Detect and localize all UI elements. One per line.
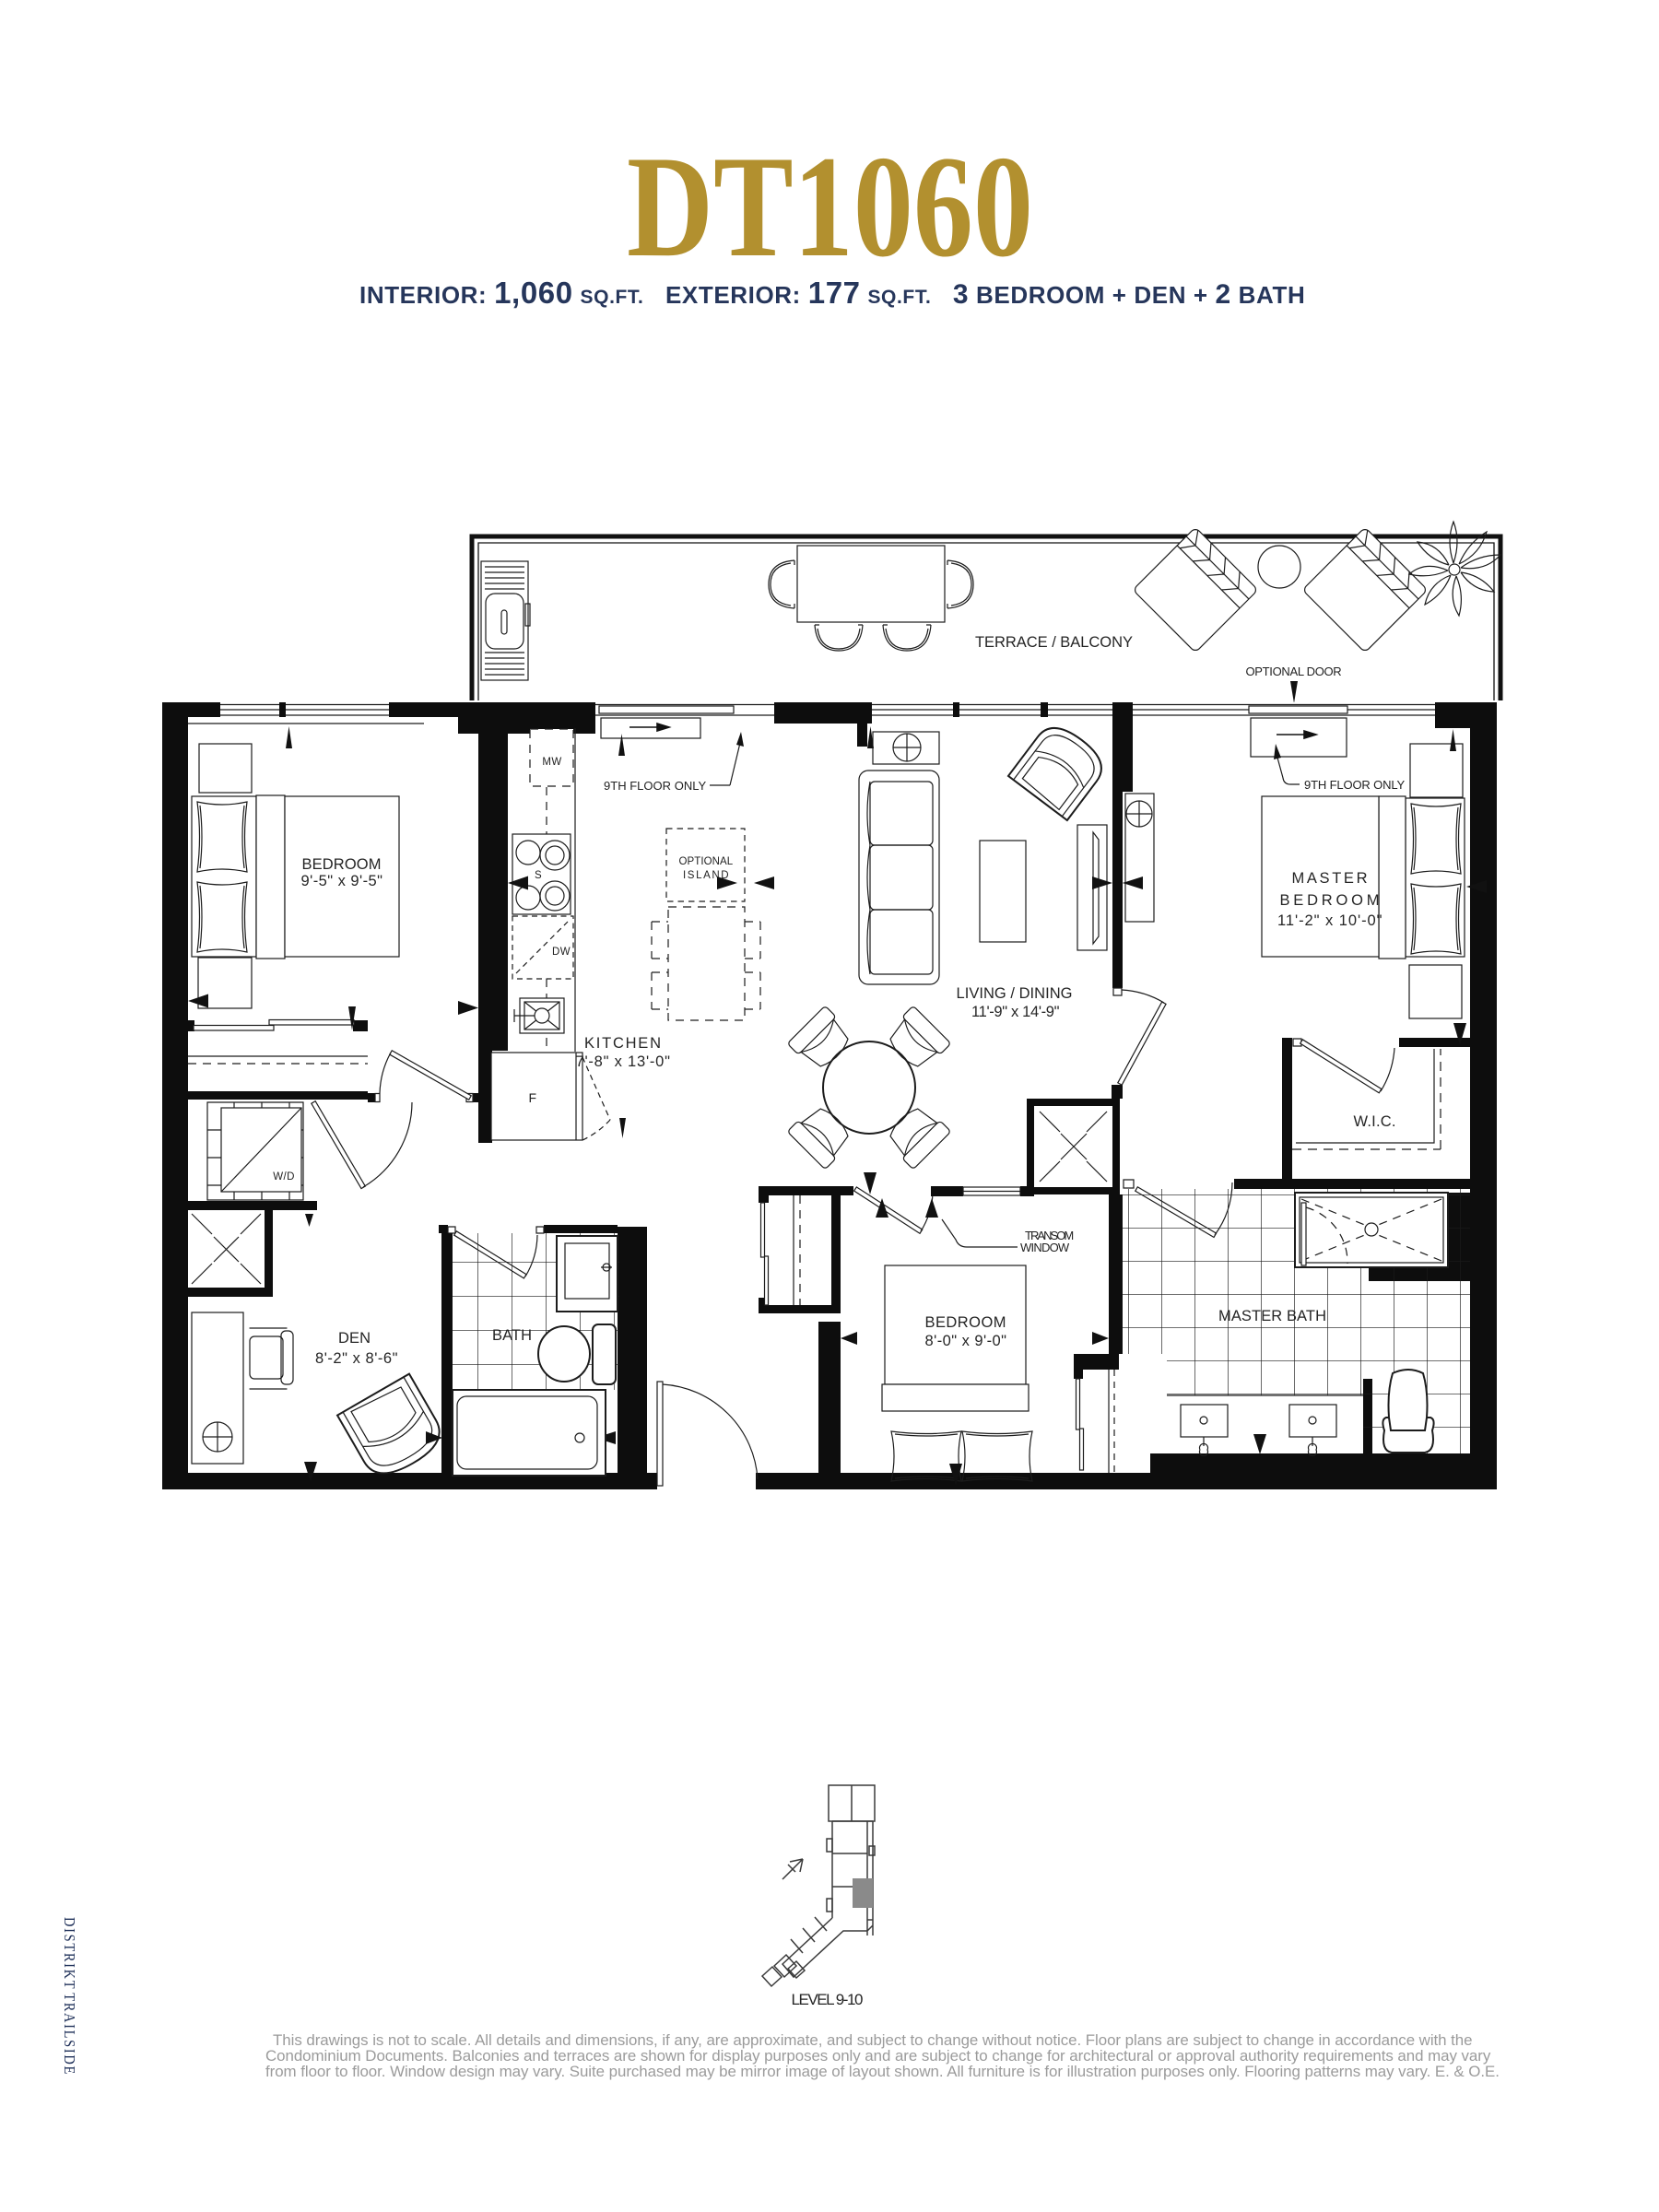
svg-text:9TH FLOOR ONLY: 9TH FLOOR ONLY (604, 779, 707, 793)
svg-text:KITCHEN: KITCHEN (584, 1035, 662, 1052)
svg-text:WINDOW: WINDOW (1020, 1241, 1070, 1254)
svg-text:BATH: BATH (492, 1327, 533, 1344)
svg-text:BEDROOM: BEDROOM (925, 1314, 1007, 1331)
svg-text:W.I.C.: W.I.C. (1354, 1113, 1397, 1130)
svg-text:INTERIOR: 1,060 SQ.FT. EXTER: INTERIOR: 1,060 SQ.FT. EXTERIOR: 177 SQ.… (359, 276, 1305, 310)
svg-text:OPTIONAL DOOR: OPTIONAL DOOR (1246, 665, 1343, 678)
svg-text:BEDROOM: BEDROOM (302, 856, 382, 873)
svg-text:7'-8" x 13'-0": 7'-8" x 13'-0" (576, 1053, 671, 1070)
svg-text:DT1060: DT1060 (627, 126, 1033, 288)
svg-text:8'-0" x 9'-0": 8'-0" x 9'-0" (925, 1333, 1007, 1349)
svg-text:11'-9" x 14'-9": 11'-9" x 14'-9" (971, 1004, 1060, 1020)
svg-text:DISTRIKT TRAILSIDE: DISTRIKT TRAILSIDE (61, 1917, 78, 2076)
svg-text:MASTER: MASTER (1292, 870, 1369, 887)
svg-text:9TH FLOOR ONLY: 9TH FLOOR ONLY (1304, 778, 1406, 792)
svg-text:11'-2" x 10'-0": 11'-2" x 10'-0" (1277, 912, 1382, 929)
svg-text:OPTIONAL: OPTIONAL (679, 856, 734, 867)
svg-text:TERRACE / BALCONY: TERRACE / BALCONY (975, 634, 1134, 651)
svg-text:DEN: DEN (338, 1330, 371, 1347)
svg-text:from floor to floor. Window de: from floor to floor. Window design may v… (265, 2063, 1500, 2080)
svg-text:MASTER BATH: MASTER BATH (1218, 1308, 1327, 1324)
svg-text:S: S (535, 870, 542, 881)
svg-text:LEVEL 9-10: LEVEL 9-10 (792, 1991, 865, 2008)
svg-text:9'-5" x 9'-5": 9'-5" x 9'-5" (301, 873, 383, 889)
svg-text:8'-2" x 8'-6": 8'-2" x 8'-6" (315, 1350, 398, 1367)
svg-text:F: F (529, 1090, 537, 1105)
svg-text:DW: DW (552, 947, 571, 958)
svg-text:LIVING / DINING: LIVING / DINING (957, 985, 1074, 1002)
svg-text:W/D: W/D (273, 1171, 295, 1182)
svg-text:MW: MW (542, 757, 561, 768)
